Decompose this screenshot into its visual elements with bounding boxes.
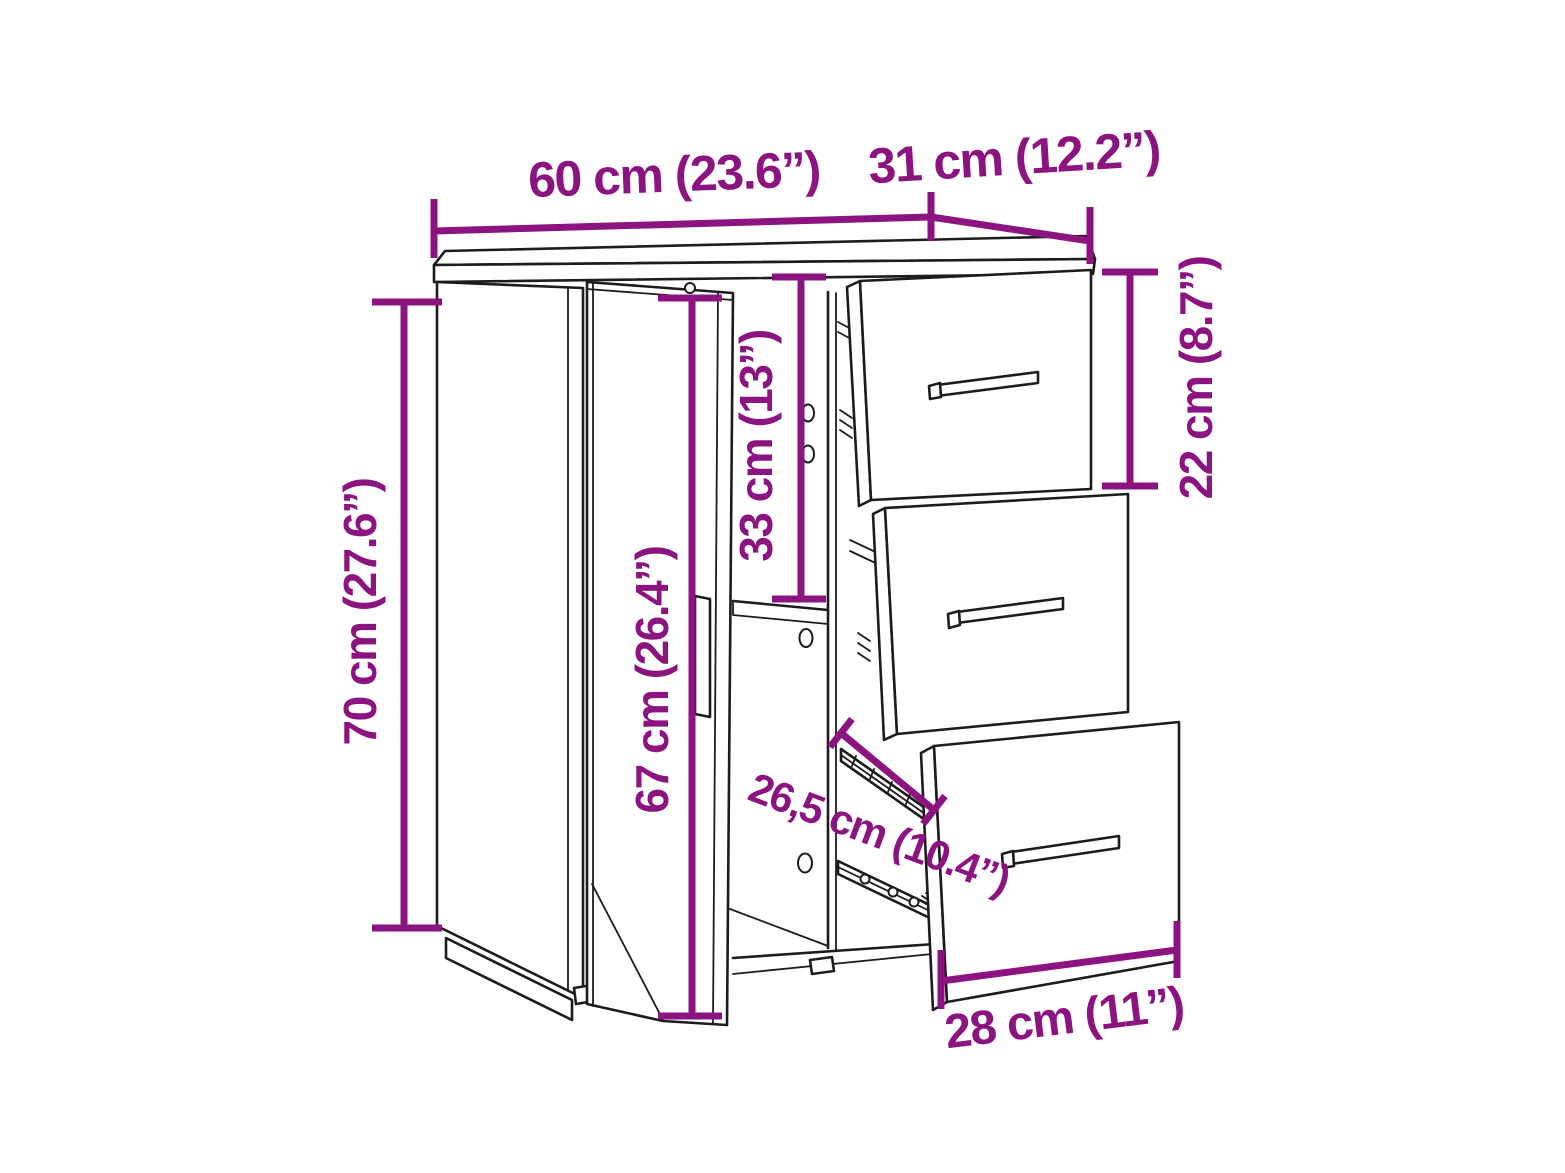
rail-roller — [889, 888, 898, 897]
label-height: 70 cm (27.6”) — [334, 478, 386, 745]
shelf-pin-hole — [798, 854, 812, 873]
cabinet-drawing — [434, 236, 1179, 1025]
center-foot — [810, 957, 834, 974]
left-side-panel — [437, 282, 600, 1020]
label-compartment-height: 33 cm (13”) — [730, 330, 782, 562]
door-handle — [695, 596, 710, 717]
label-door-height: 67 cm (26.4”) — [626, 546, 678, 813]
drawer2-slide-chevrons — [858, 633, 870, 661]
shelf-pin-hole — [800, 629, 813, 647]
interior-floor-edge — [722, 906, 828, 946]
dimension-diagram: 60 cm (23.6”) 31 cm (12.2”) 70 cm (27.6”… — [0, 0, 1565, 1173]
drawer3-lower-rail-line — [838, 867, 934, 913]
label-drawer-height: 22 cm (8.7”) — [1170, 256, 1222, 499]
door-hinge — [685, 283, 695, 293]
rail-roller — [861, 875, 870, 884]
dimension-diagram-svg: 60 cm (23.6”) 31 cm (12.2”) 70 cm (27.6”… — [0, 0, 1565, 1173]
label-depth: 31 cm (12.2”) — [867, 121, 1162, 195]
drawer-1 — [847, 270, 1091, 506]
label-width: 60 cm (23.6”) — [527, 141, 821, 208]
drawer1-slide-chevrons — [840, 410, 852, 438]
drawer-1-handle-cap — [929, 383, 941, 399]
drawer-2 — [873, 494, 1128, 740]
drawer-2-handle-cap — [948, 611, 960, 628]
left-panel-face — [437, 282, 583, 998]
dimension-drawer-height-22cm — [1102, 272, 1158, 486]
